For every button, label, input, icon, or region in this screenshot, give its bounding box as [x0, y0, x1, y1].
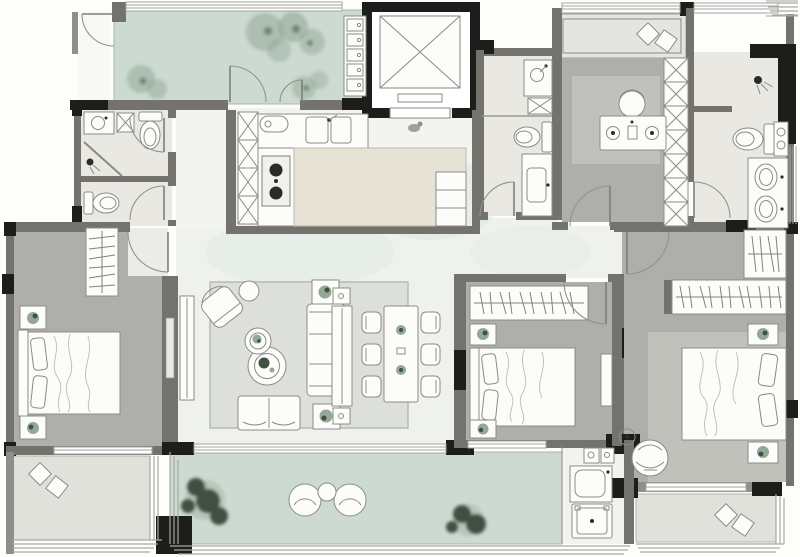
vanity-sink	[84, 112, 114, 134]
ottoman	[239, 281, 259, 301]
round-table	[318, 483, 336, 501]
elevator-door-sill	[390, 108, 450, 118]
island-side-cabinet	[436, 172, 466, 226]
north-balcony-window	[126, 2, 342, 11]
towel-niche	[774, 122, 788, 156]
wardrobe-column	[664, 58, 688, 226]
double-bed	[682, 348, 786, 440]
pantry-column	[238, 112, 258, 224]
double-bed	[470, 348, 575, 426]
wardrobe-hangers	[86, 228, 118, 296]
left-bedroom-south-window	[54, 447, 152, 454]
nightstand-plant	[20, 416, 46, 439]
corner-fixture	[260, 116, 288, 132]
elevator-door	[398, 94, 442, 102]
master-balcony-floor	[636, 494, 776, 542]
desk	[600, 116, 666, 150]
folding-window-column	[344, 16, 366, 96]
double-bed	[18, 330, 120, 416]
double-sink	[306, 115, 351, 143]
entry-porch-floor	[78, 12, 110, 102]
lounge-chair	[632, 440, 668, 476]
utility-sink	[570, 466, 612, 502]
dresser	[601, 354, 612, 406]
storage-boxes	[584, 448, 614, 463]
left-hall-floor	[128, 228, 168, 276]
floor-plan-screenshot	[0, 0, 800, 557]
floor-wash	[470, 226, 590, 278]
nightstand-plant	[20, 306, 46, 329]
toilet-bottom	[84, 192, 119, 214]
wardrobe-hangers-horizontal	[664, 280, 786, 314]
sideboard	[332, 288, 352, 424]
nightstand-plant	[748, 324, 778, 345]
cooktop	[262, 156, 290, 206]
wash-counter	[522, 154, 552, 216]
dining-table	[384, 306, 418, 402]
double-vanity	[748, 158, 788, 228]
tv-console	[180, 296, 194, 400]
bench	[238, 396, 300, 430]
wardrobe-hangers-vertical	[744, 230, 786, 278]
nightstand-plant	[748, 442, 778, 463]
left-balcony-floor	[12, 456, 150, 540]
washing-machine	[572, 504, 612, 538]
desk-chair	[619, 90, 645, 117]
vanity-sink	[524, 60, 552, 96]
master-bedroom-south-window	[646, 483, 746, 491]
middle-bedroom-south-window	[468, 441, 546, 448]
towel-shelf	[528, 98, 552, 114]
floor-plan	[0, 0, 800, 557]
nightstand-plant	[470, 420, 496, 438]
wardrobe-hangers	[470, 286, 588, 320]
toilet-top	[139, 112, 162, 149]
nightstand-plant	[470, 324, 496, 345]
living-south-window	[194, 444, 446, 453]
study-north-window	[562, 3, 680, 13]
